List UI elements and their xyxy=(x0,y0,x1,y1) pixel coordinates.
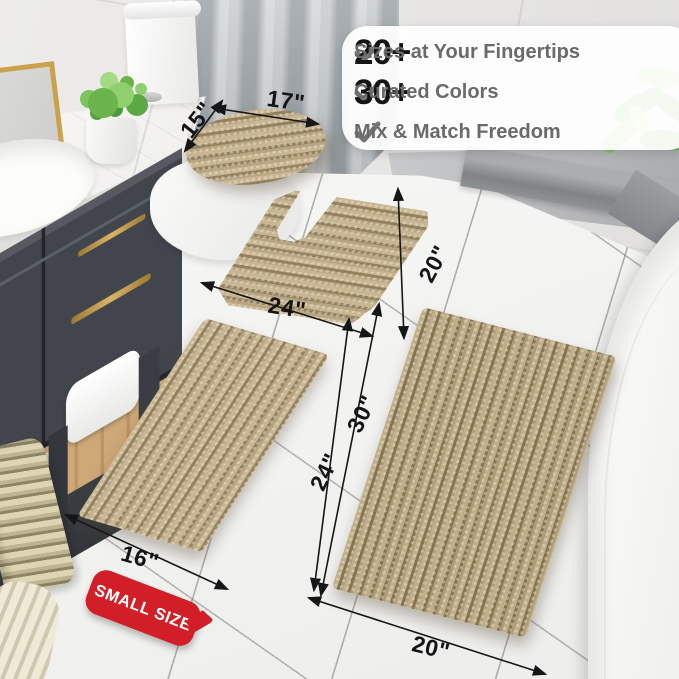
feature-row-colors: 30+ Curated Colors xyxy=(354,74,679,110)
vanity-handle-lower xyxy=(71,272,151,325)
dim-label-lid-width: 17" xyxy=(265,85,306,117)
plant-foliage xyxy=(88,88,118,118)
feature-label: Curated Colors xyxy=(354,82,498,102)
plant-pot xyxy=(86,118,136,164)
toilet-flush-button xyxy=(140,92,162,102)
feature-panel: 20+ Sizes at Your Fingertips 30+ Curated… xyxy=(342,26,679,150)
feature-label: Sizes at Your Fingertips xyxy=(354,42,580,62)
feature-row-sizes: 20+ Sizes at Your Fingertips xyxy=(354,34,679,70)
feature-row-mix-match: Mix & Match Freedom xyxy=(354,114,679,150)
dim-label-contour-width: 24" xyxy=(266,292,308,325)
toilet-tank xyxy=(124,4,199,106)
feature-label: Mix & Match Freedom xyxy=(354,122,561,142)
product-photo: 17" 15" 24" 20" 24" 30" 16" 20" 20+ Size… xyxy=(0,0,679,679)
